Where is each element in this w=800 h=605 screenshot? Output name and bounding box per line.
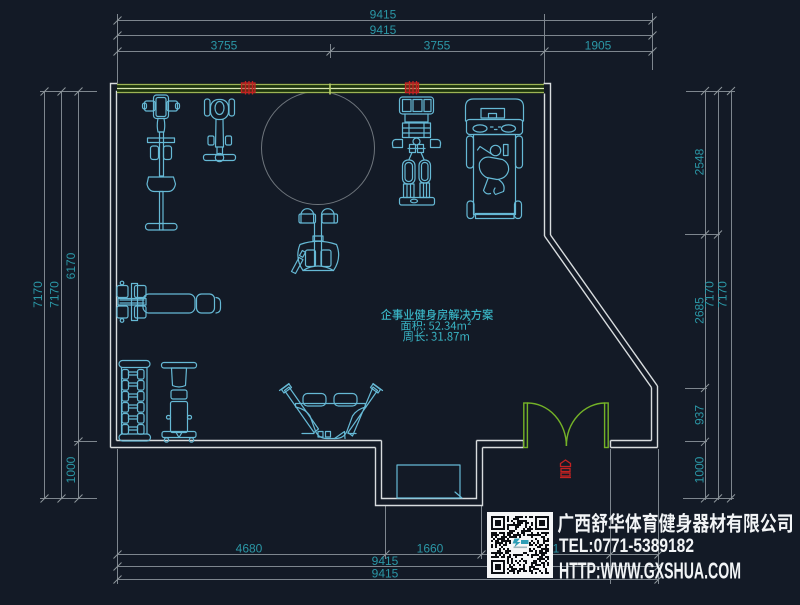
svg-text:7170: 7170 [703,281,717,308]
svg-text:HTTP:WWW.GXSHUA.COM: HTTP:WWW.GXSHUA.COM [559,558,741,584]
svg-text:9415: 9415 [370,23,397,37]
svg-text:TEL:0771-5389182: TEL:0771-5389182 [559,535,694,557]
svg-text:1905: 1905 [585,39,612,53]
svg-text:937: 937 [693,405,707,425]
svg-text:7170: 7170 [48,281,62,308]
svg-text:9415: 9415 [372,567,399,581]
svg-text:6170: 6170 [64,252,78,279]
svg-text:9415: 9415 [370,8,397,22]
svg-text:7170: 7170 [31,281,45,308]
svg-text:7170: 7170 [716,281,730,308]
svg-text:3755: 3755 [211,39,238,53]
svg-text:3755: 3755 [424,39,451,53]
svg-text:1660: 1660 [417,542,444,556]
svg-text:2548: 2548 [693,148,707,175]
svg-text:1000: 1000 [64,456,78,483]
svg-text:4680: 4680 [236,542,263,556]
svg-text:1000: 1000 [693,456,707,483]
